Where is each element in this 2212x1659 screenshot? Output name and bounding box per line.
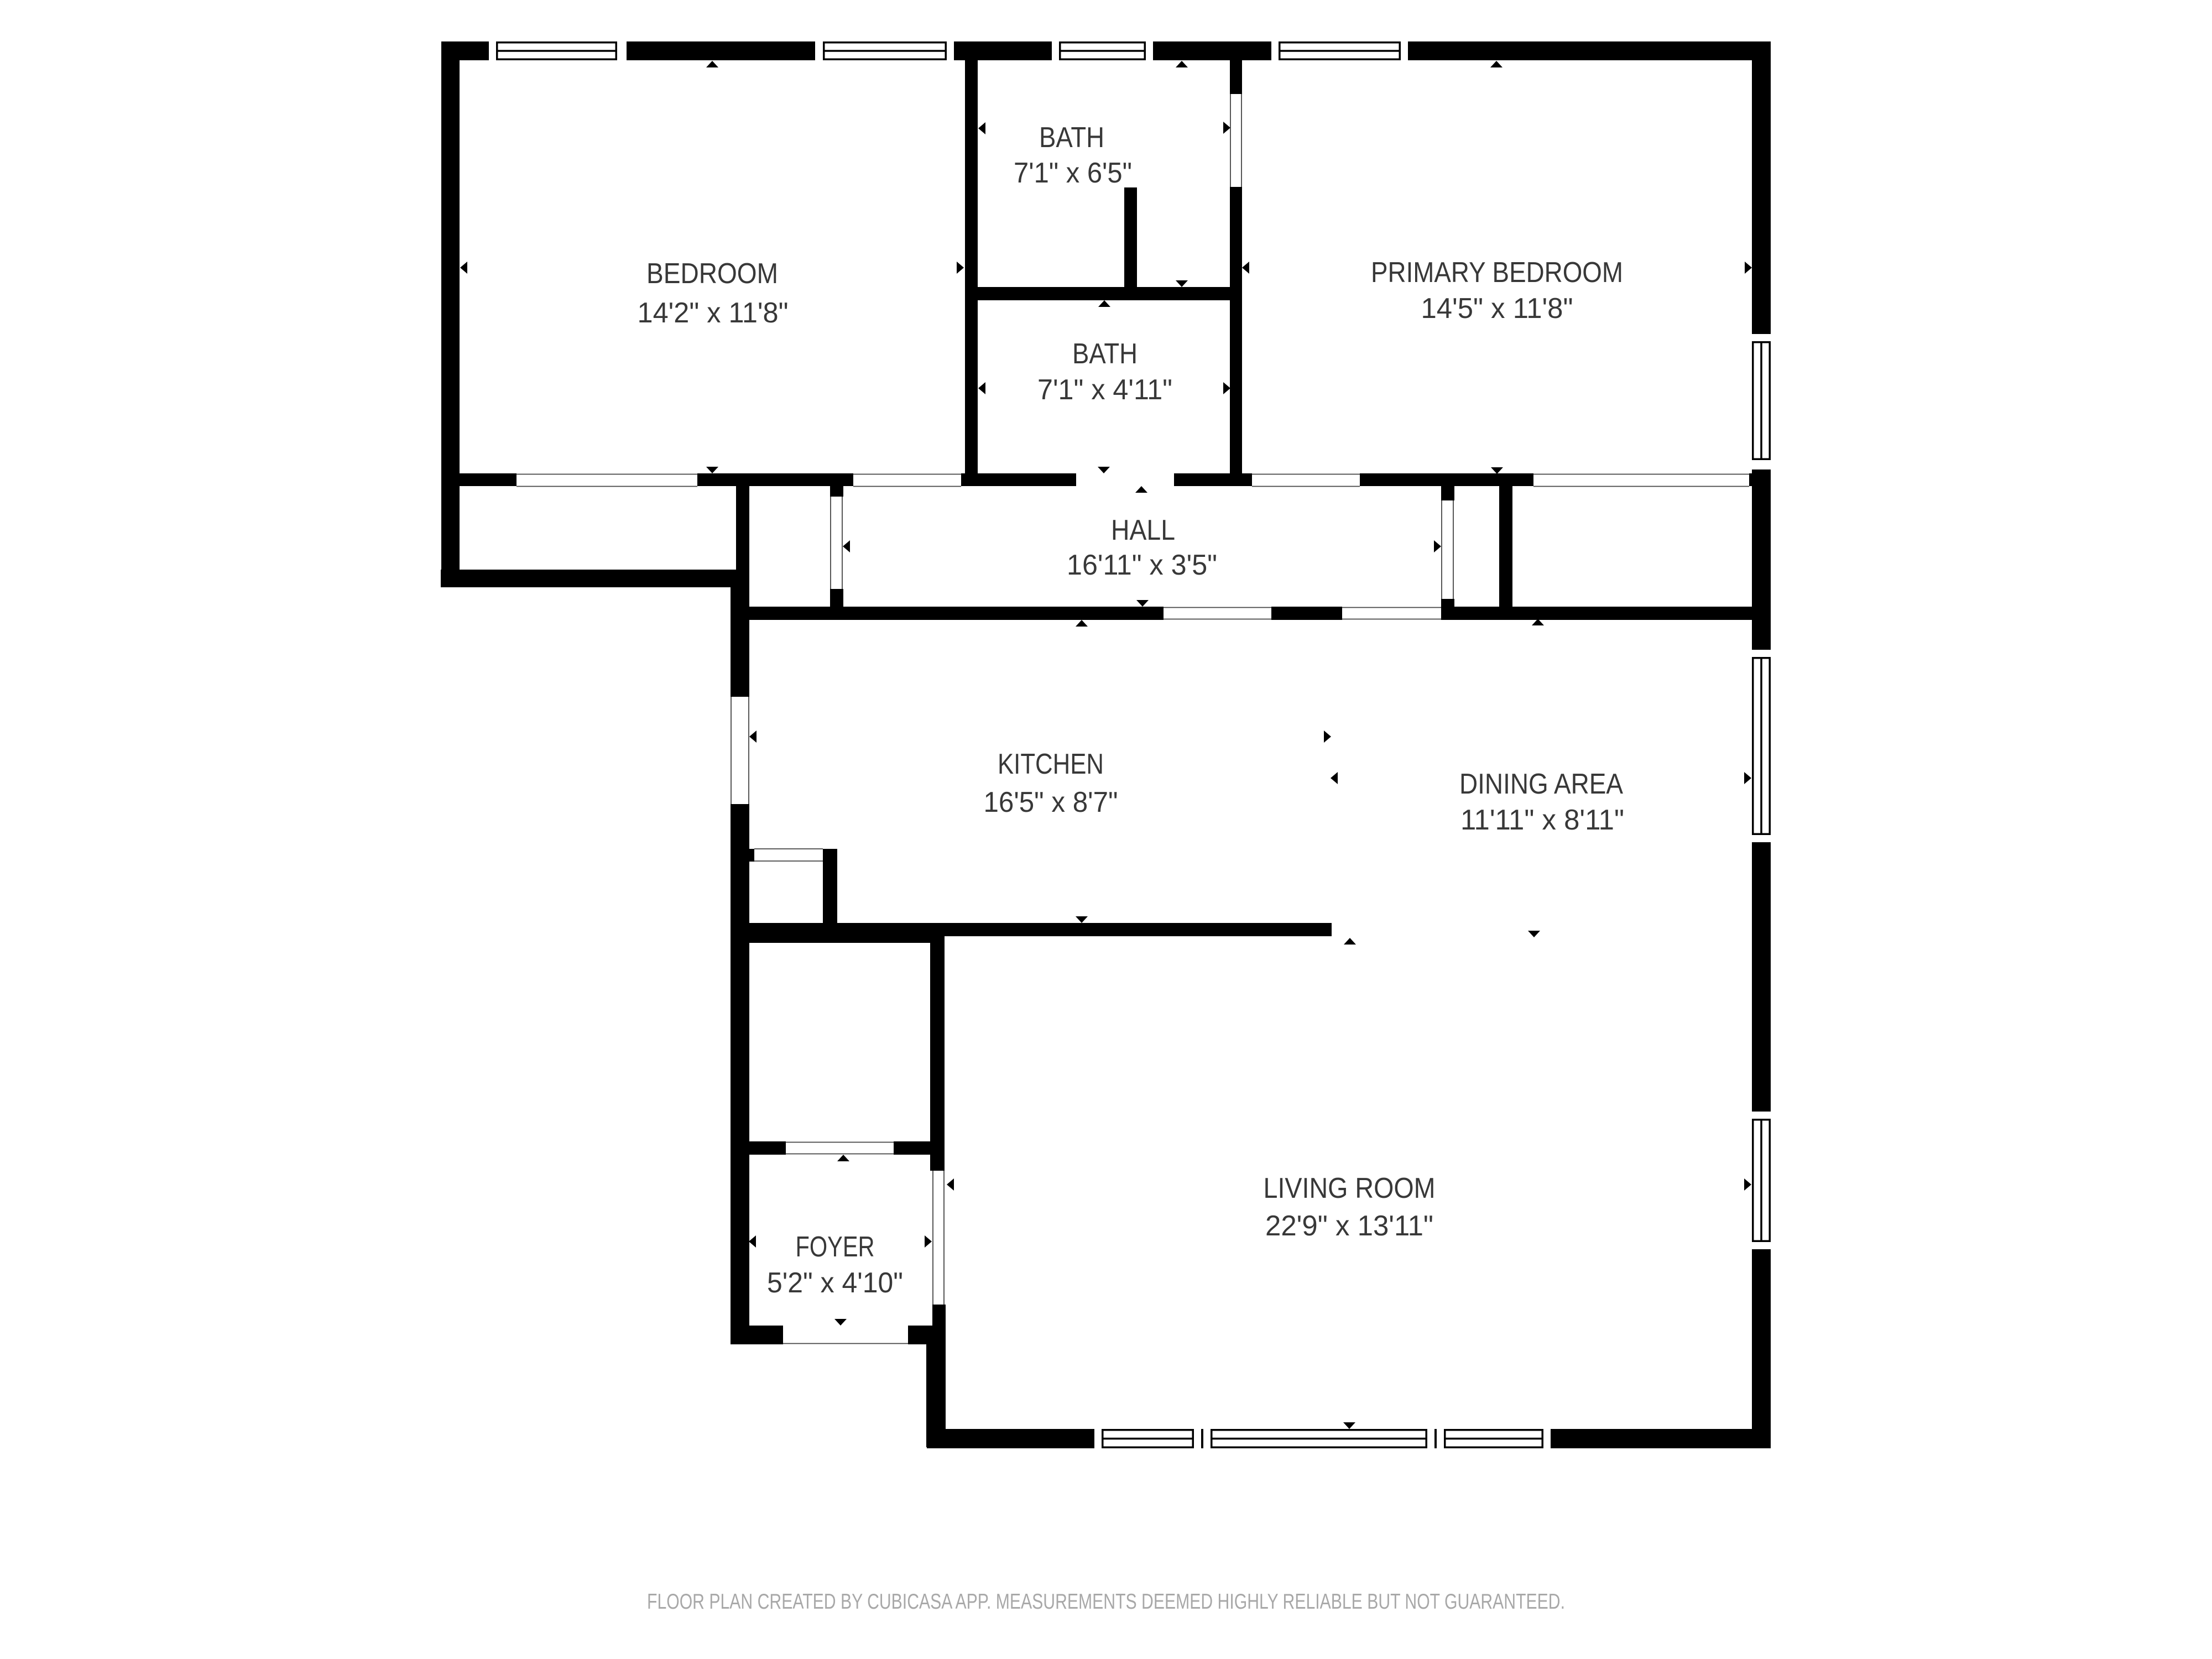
svg-text:7'1" x 4'11": 7'1" x 4'11": [1037, 374, 1172, 406]
svg-text:LIVING ROOM: LIVING ROOM: [1264, 1172, 1436, 1204]
svg-text:FLOOR PLAN CREATED BY CUBICASA: FLOOR PLAN CREATED BY CUBICASA APP. MEAS…: [647, 1590, 1565, 1614]
svg-text:BATH: BATH: [1072, 338, 1138, 370]
svg-text:BATH: BATH: [1039, 122, 1104, 154]
svg-text:11'11" x 8'11": 11'11" x 8'11": [1460, 804, 1624, 836]
svg-text:FOYER: FOYER: [796, 1231, 875, 1263]
svg-text:HALL: HALL: [1111, 514, 1175, 546]
svg-text:PRIMARY BEDROOM: PRIMARY BEDROOM: [1371, 257, 1623, 289]
svg-text:16'11" x 3'5": 16'11" x 3'5": [1067, 549, 1217, 581]
svg-text:14'5" x 11'8": 14'5" x 11'8": [1421, 293, 1573, 325]
svg-text:KITCHEN: KITCHEN: [998, 748, 1104, 780]
svg-text:7'1" x 6'5": 7'1" x 6'5": [1014, 157, 1132, 189]
svg-text:BEDROOM: BEDROOM: [646, 258, 778, 290]
svg-text:16'5" x 8'7": 16'5" x 8'7": [984, 786, 1118, 818]
svg-text:14'2" x 11'8": 14'2" x 11'8": [638, 297, 789, 329]
svg-text:5'2" x 4'10": 5'2" x 4'10": [767, 1267, 903, 1299]
svg-text:DINING AREA: DINING AREA: [1459, 768, 1623, 800]
svg-text:22'9" x 13'11": 22'9" x 13'11": [1265, 1210, 1433, 1242]
